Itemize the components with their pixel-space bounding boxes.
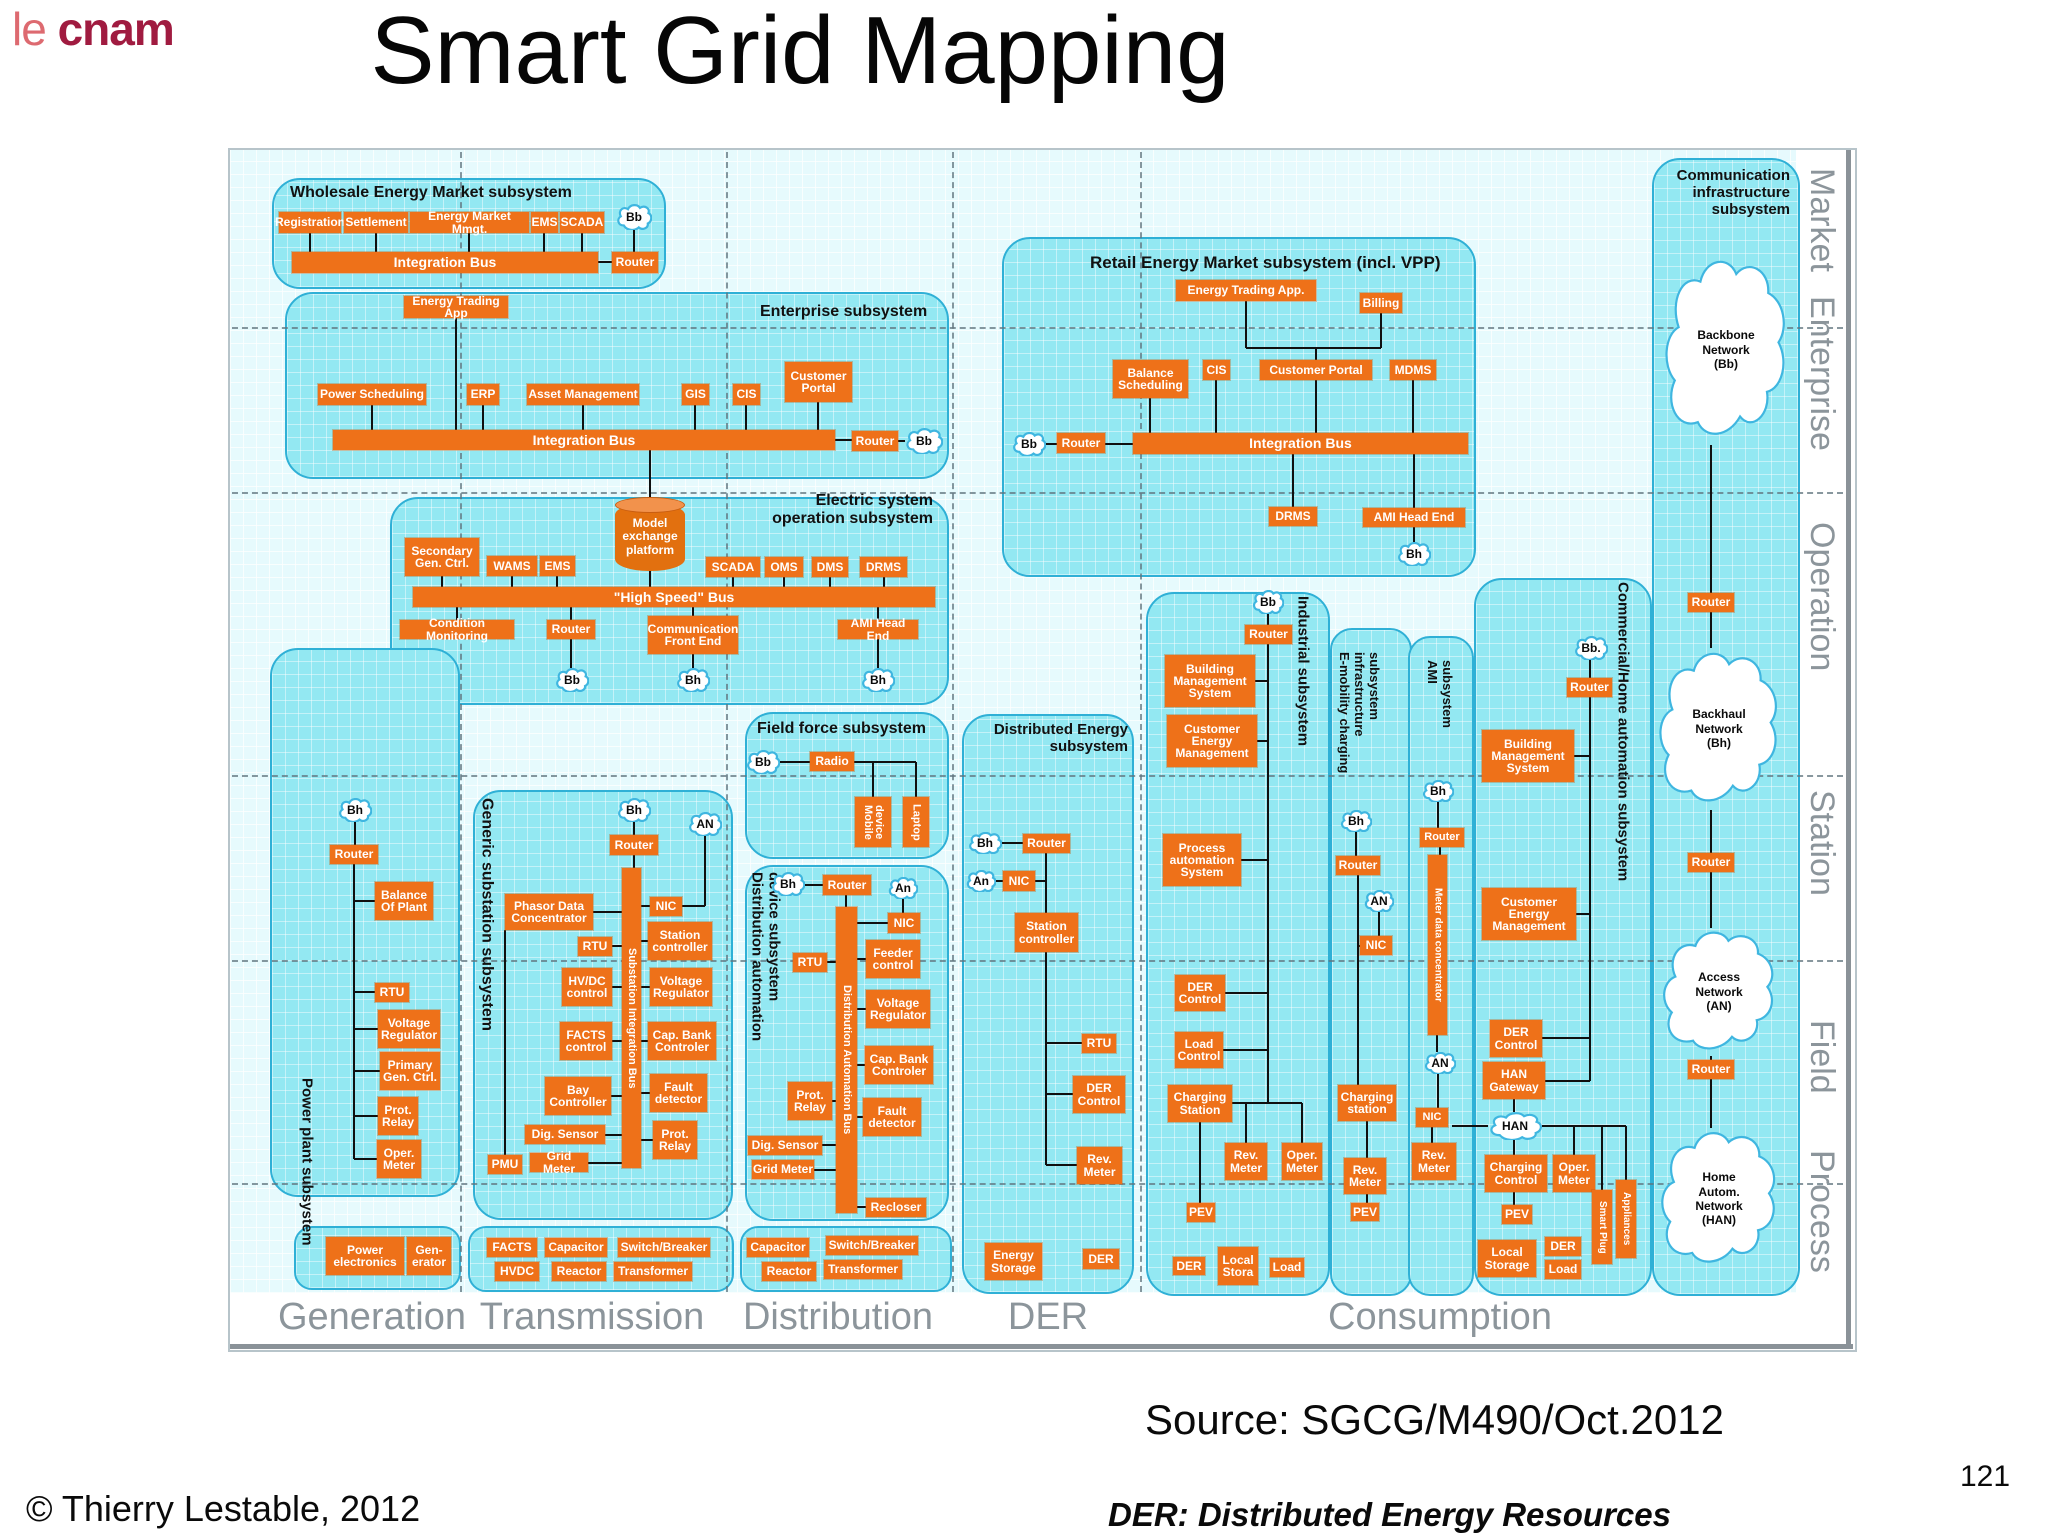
cloud-bb-icon: Bb bbox=[746, 750, 780, 774]
node-recloser: Recloser bbox=[866, 1198, 926, 1217]
node-ami-head-end: AMI Head End bbox=[1363, 508, 1465, 527]
node-facts-control: FACTS control bbox=[560, 1022, 612, 1060]
node-ems: EMS bbox=[540, 556, 575, 576]
subsystem-vlabel-generic-substation: Generic substation subsystem bbox=[477, 798, 501, 1110]
subsystem-title-retail-energy-market: Retail Energy Market subsystem (incl. VP… bbox=[1090, 253, 1441, 272]
node-rtu: RTU bbox=[793, 953, 827, 972]
subsystem-title-electric-system-operation: Electric system operation subsystem bbox=[688, 492, 933, 528]
node-customer-portal: Customer Portal bbox=[785, 362, 852, 402]
zone-row-label-market: Market bbox=[1802, 168, 1848, 272]
bus-integration-bus: Integration Bus bbox=[292, 252, 598, 273]
node-reactor: Reactor bbox=[552, 1262, 606, 1281]
node-voltage-regulator: Voltage Regulator bbox=[378, 1010, 440, 1048]
node-cis: CIS bbox=[1203, 360, 1230, 380]
node-laptop: Laptop bbox=[903, 797, 929, 847]
cloud-bh-icon: Bh bbox=[771, 872, 805, 896]
cloud-bh-icon: Bh bbox=[861, 668, 895, 692]
cloud-an-icon: An bbox=[966, 870, 996, 892]
node-scada: SCADA bbox=[706, 557, 760, 577]
node-router: Router bbox=[612, 252, 658, 273]
node-local-stora: Local Stora bbox=[1218, 1247, 1258, 1285]
node-hvdc: HVDC bbox=[495, 1262, 539, 1281]
node-gen-erator: Gen- erator bbox=[407, 1237, 451, 1275]
node-rev-meter: Rev. Meter bbox=[1225, 1143, 1267, 1180]
bus-integration-bus: Integration Bus bbox=[1133, 433, 1468, 454]
node-pmu: PMU bbox=[488, 1155, 522, 1174]
node-pev: PEV bbox=[1502, 1205, 1532, 1224]
cloud-han-icon: HAN bbox=[1488, 1112, 1542, 1140]
node-fault-detector: Fault detector bbox=[863, 1098, 921, 1136]
node-switch-breaker: Switch/Breaker bbox=[618, 1238, 710, 1257]
node-grid-meter: Grid Meter bbox=[530, 1153, 588, 1172]
node-transformer: Transformer bbox=[824, 1260, 902, 1279]
subsystem-title-wholesale-energy-market: Wholesale Energy Market subsystem bbox=[290, 184, 572, 202]
node-condition-monitoring: Condition Monitoring bbox=[400, 620, 514, 639]
node-model-exchange-platform: Model exchange platform bbox=[615, 503, 685, 571]
node-switch-breaker: Switch/Breaker bbox=[826, 1236, 918, 1255]
node-energy-trading-app: Energy Trading App bbox=[404, 296, 508, 318]
cloud-bh-icon: Bh bbox=[676, 668, 710, 692]
node-cap-bank-controler: Cap. Bank Controler bbox=[648, 1022, 716, 1060]
cloud-an-icon: An bbox=[888, 877, 918, 899]
node-router: Router bbox=[330, 845, 378, 864]
node-capacitor: Capacitor bbox=[545, 1238, 607, 1257]
node-oper-meter: Oper. Meter bbox=[1553, 1155, 1595, 1192]
node-drms: DRMS bbox=[1269, 507, 1317, 526]
node-power-electronics: Power electronics bbox=[326, 1237, 404, 1275]
node-router: Router bbox=[610, 835, 658, 855]
bus-substation-integration-bus: Substation Integration Bus bbox=[622, 868, 641, 1168]
zone-row-label-operation: Operation bbox=[1802, 522, 1848, 671]
node-smart-plug: Smart Plug bbox=[1592, 1190, 1612, 1264]
node-charging-control: Charging Control bbox=[1485, 1155, 1547, 1192]
cloud-bh-icon: Bh bbox=[338, 798, 372, 822]
subsystem-title-distributed-energy: Distributed Energy subsystem bbox=[988, 722, 1128, 756]
subsystem-vlabel-industrial: Industrial subsystem bbox=[1294, 596, 1316, 778]
subsystem-title-field-force: Field force subsystem bbox=[757, 720, 926, 738]
cloud-an-icon: AN bbox=[1424, 1052, 1456, 1074]
node-router: Router bbox=[1688, 593, 1734, 612]
node-router: Router bbox=[1023, 834, 1070, 853]
node-der-control: DER Control bbox=[1490, 1020, 1542, 1057]
node-der-control: DER Control bbox=[1175, 975, 1225, 1011]
node-building-management-system: Building Management System bbox=[1482, 730, 1574, 782]
node-phasor-data-concentrator: Phasor Data Concentrator bbox=[505, 894, 593, 930]
node-nic: NIC bbox=[888, 913, 920, 933]
node-prot-relay: Prot. Relay bbox=[378, 1097, 418, 1135]
node-grid-meter: Grid Meter bbox=[752, 1160, 814, 1179]
node-router: Router bbox=[852, 431, 898, 451]
node-process-automation-system: Process automation System bbox=[1163, 834, 1241, 886]
subsystem-title-enterprise: Enterprise subsystem bbox=[760, 303, 927, 321]
node-building-management-system: Building Management System bbox=[1165, 655, 1255, 707]
cloud-bh-icon: Bh bbox=[1397, 542, 1431, 566]
node-scada: SCADA bbox=[560, 212, 604, 233]
node-gis: GIS bbox=[682, 384, 709, 405]
cloud-an-icon: AN bbox=[688, 812, 722, 836]
zone-row-label-station: Station bbox=[1802, 790, 1848, 896]
node-voltage-regulator: Voltage Regulator bbox=[866, 990, 930, 1028]
node-feeder-control: Feeder control bbox=[866, 940, 920, 978]
node-bay-controller: Bay Controller bbox=[545, 1077, 611, 1115]
zone-col-label-der: DER bbox=[888, 1296, 1208, 1339]
node-router: Router bbox=[1688, 1060, 1734, 1079]
node-station-controller: Station controller bbox=[648, 922, 712, 960]
node-energy-trading-app: Energy Trading App. bbox=[1176, 280, 1316, 301]
network-cloud-backbone-network-bb-icon: Backbone Network (Bb) bbox=[1662, 255, 1790, 445]
node-station-controller: Station controller bbox=[1015, 913, 1078, 952]
zone-row-label-field: Field bbox=[1802, 1020, 1848, 1094]
node-mdms: MDMS bbox=[1390, 360, 1436, 380]
node-capacitor: Capacitor bbox=[747, 1238, 809, 1257]
subsystem-vlabel-power-plant: Power plant subsystem bbox=[298, 1078, 320, 1290]
cloud-bb-icon: Bb bbox=[1252, 590, 1284, 614]
node-rev-meter: Rev. Meter bbox=[1077, 1147, 1122, 1184]
node-primary-gen-ctrl: Primary Gen. Ctrl. bbox=[380, 1052, 440, 1090]
node-drms: DRMS bbox=[860, 557, 907, 577]
cloud-bb-icon: Bb bbox=[905, 428, 943, 454]
subsystem-vlabel-commercial-home-automation: Commercial/Home automation subsystem bbox=[1614, 582, 1636, 1052]
node-pev: PEV bbox=[1187, 1203, 1215, 1222]
cloud-bh-icon: Bh bbox=[968, 832, 1002, 854]
node-local-storage: Local Storage bbox=[1478, 1240, 1536, 1277]
node-router: Router bbox=[1420, 828, 1464, 847]
node-han-gateway: HAN Gateway bbox=[1483, 1062, 1545, 1099]
node-cap-bank-controler: Cap. Bank Controler bbox=[865, 1046, 933, 1084]
node-nic: NIC bbox=[1003, 871, 1035, 891]
node-router: Router bbox=[823, 875, 871, 895]
node-load: Load bbox=[1270, 1258, 1304, 1277]
node-router: Router bbox=[1057, 433, 1105, 453]
node-rtu: RTU bbox=[1082, 1034, 1116, 1053]
cloud-an-icon: AN bbox=[1364, 890, 1394, 912]
node-pev: PEV bbox=[1351, 1203, 1379, 1221]
node-prot-relay: Prot. Relay bbox=[788, 1082, 832, 1120]
node-load-control: Load Control bbox=[1175, 1032, 1223, 1068]
node-appliances: Appliances bbox=[1616, 1180, 1636, 1258]
node-rev-meter: Rev. Meter bbox=[1344, 1158, 1386, 1194]
bus-high-speed-bus: "High Speed" Bus bbox=[413, 587, 935, 607]
node-billing: Billing bbox=[1360, 293, 1402, 313]
node-asset-management: Asset Management bbox=[527, 384, 639, 405]
node-der-control: DER Control bbox=[1073, 1076, 1125, 1113]
node-nic: NIC bbox=[1360, 936, 1392, 955]
subsystem-vlabel-ami: AMI subsystem bbox=[1424, 660, 1464, 762]
cloud-bh-icon: Bh bbox=[1340, 810, 1372, 832]
node-nic: NIC bbox=[650, 897, 682, 916]
node-charging-station: Charging Station bbox=[1168, 1085, 1232, 1122]
node-der: DER bbox=[1545, 1237, 1581, 1256]
cloud-bb-icon: Bb bbox=[1012, 432, 1046, 456]
zone-row-label-process: Process bbox=[1802, 1150, 1848, 1273]
node-charging-station: Charging station bbox=[1338, 1085, 1396, 1121]
node-router: Router bbox=[1245, 625, 1292, 644]
cloud-bh-icon: Bh bbox=[1422, 780, 1454, 802]
node-der: DER bbox=[1083, 1249, 1119, 1269]
node-router: Router bbox=[1336, 856, 1380, 875]
node-mobile-device: Mobile device bbox=[855, 797, 891, 847]
node-dig-sensor: Dig. Sensor bbox=[748, 1136, 822, 1155]
node-rtu: RTU bbox=[578, 937, 612, 956]
node-facts: FACTS bbox=[487, 1238, 537, 1257]
node-wams: WAMS bbox=[487, 556, 537, 576]
smart-grid-diagram: Wholesale Energy Market subsystemRegistr… bbox=[0, 0, 2048, 1536]
node-registration: Registration bbox=[279, 212, 341, 233]
node-customer-portal: Customer Portal bbox=[1260, 360, 1372, 380]
node-secondary-gen-ctrl: Secondary Gen. Ctrl. bbox=[405, 538, 479, 576]
subsystem-vlabel-e-mobility-charging: E-mobility charging infrastructure subsy… bbox=[1336, 652, 1398, 784]
node-erp: ERP bbox=[467, 384, 499, 405]
node-router: Router bbox=[1688, 853, 1734, 872]
node-transformer: Transformer bbox=[614, 1262, 692, 1281]
node-der: DER bbox=[1173, 1257, 1205, 1275]
node-fault-detector: Fault detector bbox=[650, 1074, 707, 1112]
cloud-bb-icon: Bb bbox=[555, 668, 589, 692]
zone-col-label-consumption: Consumption bbox=[1280, 1296, 1600, 1339]
node-customer-energy-management: Customer Energy Management bbox=[1167, 715, 1257, 767]
network-cloud-access-network-an-icon: Access Network (AN) bbox=[1660, 928, 1778, 1056]
node-settlement: Settlement bbox=[344, 212, 408, 233]
node-ems: EMS bbox=[531, 212, 558, 233]
node-customer-energy-management: Customer Energy Management bbox=[1482, 888, 1576, 940]
cloud-bh-icon: Bh bbox=[617, 798, 651, 822]
node-balance-scheduling: Balance Scheduling bbox=[1113, 360, 1188, 398]
node-rtu: RTU bbox=[375, 983, 409, 1002]
node-cis: CIS bbox=[733, 384, 760, 405]
node-energy-storage: Energy Storage bbox=[985, 1243, 1042, 1280]
node-energy-market-mmgt: Energy Market Mmgt. bbox=[410, 212, 529, 233]
node-rev-meter: Rev. Meter bbox=[1412, 1143, 1456, 1180]
node-oper-meter: Oper. Meter bbox=[377, 1140, 421, 1178]
node-power-scheduling: Power Scheduling bbox=[318, 384, 426, 405]
node-voltage-regulator: Voltage Regulator bbox=[650, 968, 712, 1006]
node-nic: NIC bbox=[1416, 1108, 1448, 1127]
node-prot-relay: Prot. Relay bbox=[653, 1121, 697, 1159]
cloud-bb-icon: Bb bbox=[616, 204, 652, 230]
node-reactor: Reactor bbox=[762, 1262, 816, 1281]
zone-row-label-enterprise: Enterprise bbox=[1802, 296, 1848, 451]
node-router: Router bbox=[1567, 678, 1612, 697]
network-cloud-backhaul-network-bh-icon: Backhaul Network (Bh) bbox=[1656, 648, 1782, 810]
bus-meter-data-concentrator: Meter data concentrator bbox=[1428, 855, 1447, 1035]
node-ami-head-end: AMI Head End bbox=[838, 620, 918, 639]
node-oms: OMS bbox=[765, 557, 803, 577]
node-dig-sensor: Dig. Sensor bbox=[525, 1125, 605, 1144]
node-hv-dc-control: HV/DC control bbox=[562, 968, 612, 1006]
node-oper-meter: Oper. Meter bbox=[1282, 1143, 1322, 1180]
node-dms: DMS bbox=[812, 557, 848, 577]
node-router: Router bbox=[547, 620, 595, 639]
node-radio: Radio bbox=[810, 752, 854, 771]
node-communication-front-end: Communication Front End bbox=[648, 616, 738, 654]
subsystem-title-communication-infrastructure: Communication infrastructure subsystem bbox=[1660, 168, 1790, 218]
bus-distribution-automation-bus: Distribution Automation Bus bbox=[836, 907, 857, 1213]
node-load: Load bbox=[1545, 1260, 1581, 1279]
node-balance-of-plant: Balance Of Plant bbox=[375, 882, 433, 920]
network-cloud-home-autom-network-han-icon: Home Autom. Network (HAN) bbox=[1658, 1128, 1780, 1270]
bus-integration-bus: Integration Bus bbox=[333, 430, 835, 450]
cloud-bb-icon: Bb. bbox=[1574, 636, 1608, 660]
